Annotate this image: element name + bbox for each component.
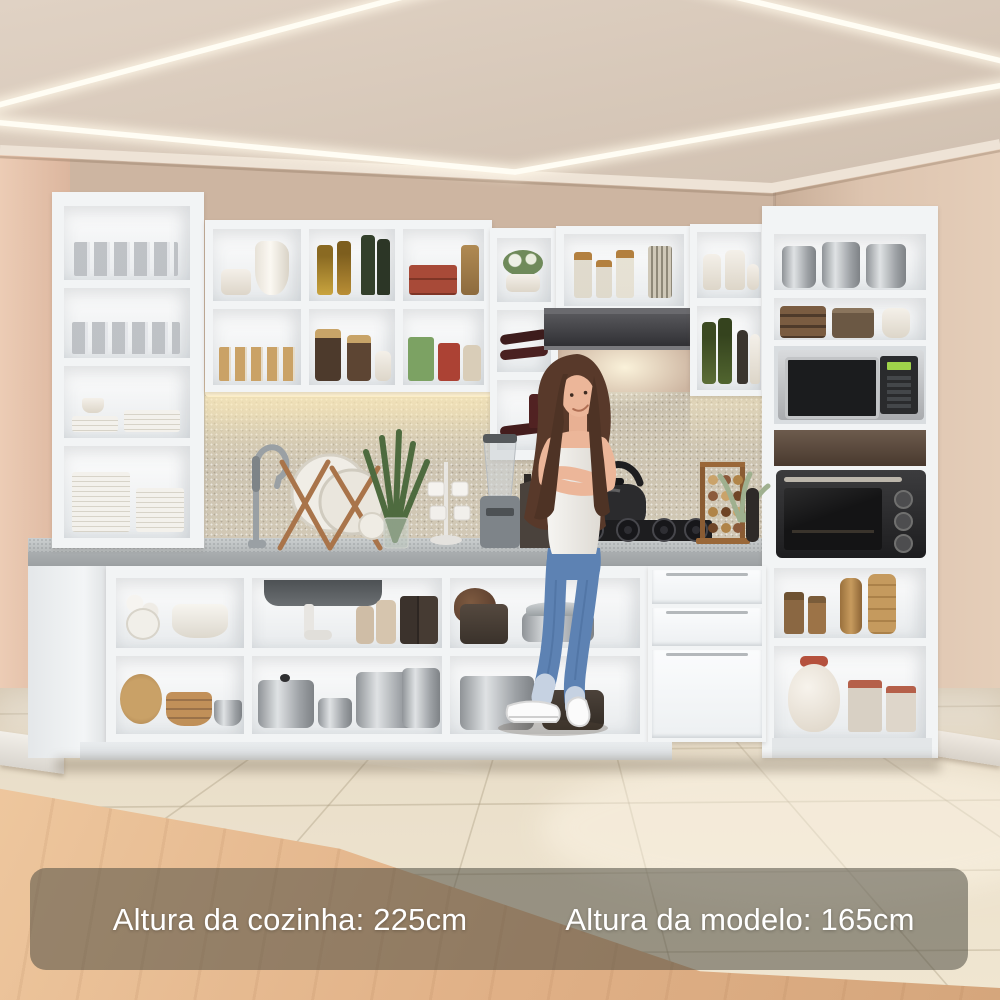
drawer-top-handle: [666, 573, 748, 576]
glass-food-container: [832, 308, 874, 338]
upper-shelf-a2: [309, 229, 395, 301]
wooden-boards: [120, 674, 162, 724]
grain-jar: [461, 245, 479, 295]
flower-bouquet: [503, 250, 543, 276]
beige-jar-2: [376, 600, 396, 644]
niche-shelf-flowers: [497, 238, 551, 302]
dark-pepper-mill: [746, 488, 759, 542]
plant-vase: [384, 518, 408, 548]
drawer-middle-handle: [666, 611, 748, 614]
model-woman: [468, 350, 643, 750]
glass-jar-3: [616, 250, 634, 298]
base-shelf-a-top: [116, 578, 244, 648]
microwave-panel: [880, 356, 918, 414]
wine-bottle-1: [500, 329, 549, 346]
range-hood-body: [544, 314, 702, 348]
right-upper-shelf-2: [697, 306, 761, 390]
steel-bowl-stack: [214, 700, 242, 726]
oil-bottle-2: [337, 241, 351, 295]
drawer-bottom: [652, 650, 762, 738]
right-upper-shelf-1: [697, 232, 761, 298]
oven-knob-3: [894, 534, 913, 553]
jean-cuff-left: [542, 684, 545, 697]
tall-plate-stack-1: [72, 472, 130, 532]
green-package: [408, 337, 434, 381]
left-tall-shelf-4: [64, 446, 190, 538]
drawer-top: [652, 570, 762, 604]
olive-oil-bottle-2: [718, 318, 732, 384]
oven-window: [784, 488, 882, 550]
white-jar-3: [747, 264, 759, 290]
dark-canisters: [400, 596, 438, 644]
white-pitcher: [255, 241, 289, 295]
base-shelf-a-bottom: [116, 656, 244, 734]
microwave: [778, 350, 924, 420]
oven-rack-line: [792, 530, 874, 533]
drinking-glasses: [74, 242, 178, 276]
coffee-cup: [82, 398, 104, 413]
sneaker-flat: [507, 702, 560, 723]
left-tall-shelf-2: [64, 288, 190, 358]
brown-container-stack: [780, 306, 826, 338]
canned-goods: [409, 265, 457, 295]
white-jar-1: [703, 254, 721, 290]
dark-bottle-1: [361, 235, 375, 295]
beige-jar-1: [356, 606, 374, 644]
spice-bottle-1: [784, 592, 804, 634]
microwave-buttons: [887, 376, 911, 408]
hood-cabinet-shelf: [564, 234, 684, 306]
olive-oil-bottle-1: [702, 322, 716, 384]
white-teapot: [882, 308, 910, 338]
pot-lid-knob: [280, 674, 290, 682]
upper-shelf-a3: [403, 229, 484, 301]
pepper-grinder: [737, 330, 748, 384]
steel-canister-1: [782, 246, 816, 288]
upper-shelf-a1: [213, 229, 301, 301]
tumbler-glasses: [72, 322, 180, 354]
right-tall-shelf-containers: [774, 298, 926, 340]
plate-stack-small: [72, 416, 118, 432]
small-white-jars: [221, 269, 251, 295]
coffee-jar-2: [347, 335, 371, 381]
glass-jar-2: [596, 260, 612, 298]
square-canister-1: [848, 680, 882, 732]
tall-plate-stack-2: [136, 488, 184, 532]
wood-grinder: [840, 578, 862, 634]
right-cabinet-plinth: [772, 738, 932, 758]
ceramic-jar: [788, 664, 840, 732]
sneaker-tiptoe: [567, 697, 589, 726]
sink-underside: [264, 580, 382, 606]
display-plate: [126, 608, 160, 640]
caption-overlay: Altura da cozinha: 225cm Altura da model…: [30, 868, 968, 970]
upper-shelf-b1: [213, 309, 301, 385]
caption-model-height: Altura da modelo: 165cm: [530, 902, 950, 938]
dark-bottle-2: [377, 239, 390, 295]
left-tall-shelf-1: [64, 206, 190, 280]
right-tall-shelf-canisters: [774, 234, 926, 290]
microwave-door: [785, 357, 879, 419]
right-tall-shelf-ceramics: [774, 646, 926, 738]
drain-pipe-elbow: [304, 630, 332, 640]
wood-canister: [868, 574, 896, 634]
pot-with-lid: [258, 680, 314, 728]
dark-open-gap: [774, 430, 926, 466]
striped-canister: [648, 246, 672, 298]
salt-grinder: [750, 334, 760, 384]
microwave-display: [887, 362, 911, 370]
kitchen-product-photo: Altura da cozinha: 225cm Altura da model…: [0, 0, 1000, 1000]
small-pot: [318, 698, 352, 728]
red-package: [438, 343, 460, 381]
amber-bowl-stack: [166, 692, 212, 726]
spice-jar-row: [219, 347, 297, 381]
base-shelf-b-bottom: [252, 656, 442, 734]
oven-knob-1: [894, 490, 913, 509]
white-jar-2: [725, 250, 745, 290]
right-tall-shelf-spices: [774, 568, 926, 638]
flower-planter: [506, 274, 540, 292]
drawer-middle: [652, 608, 762, 646]
coffee-jar-1: [315, 329, 341, 381]
cabinet-floor-shadow: [56, 758, 940, 772]
upper-shelf-b2: [309, 309, 395, 385]
square-canister-2: [886, 686, 916, 732]
small-jar: [375, 351, 391, 381]
steel-canister-2: [822, 242, 860, 288]
left-tall-shelf-3: [64, 366, 190, 438]
plate-stack-large: [124, 410, 180, 432]
mixing-bowl: [172, 604, 228, 638]
stock-pot-2: [402, 668, 440, 728]
ceiling: [0, 0, 1000, 212]
glass-jar-1: [574, 252, 592, 298]
oil-bottle-1: [317, 245, 333, 295]
left-side-panel: [28, 566, 108, 758]
drawer-bottom-handle: [666, 653, 748, 656]
mug-tree: [428, 462, 470, 545]
oven: [776, 470, 926, 558]
spice-bottle-2: [808, 596, 826, 634]
base-shelf-b-top: [252, 578, 442, 648]
caption-kitchen-height: Altura da cozinha: 225cm: [50, 902, 530, 938]
oven-handle: [784, 477, 902, 482]
steel-canister-3: [866, 244, 906, 288]
oven-knob-2: [894, 512, 913, 531]
